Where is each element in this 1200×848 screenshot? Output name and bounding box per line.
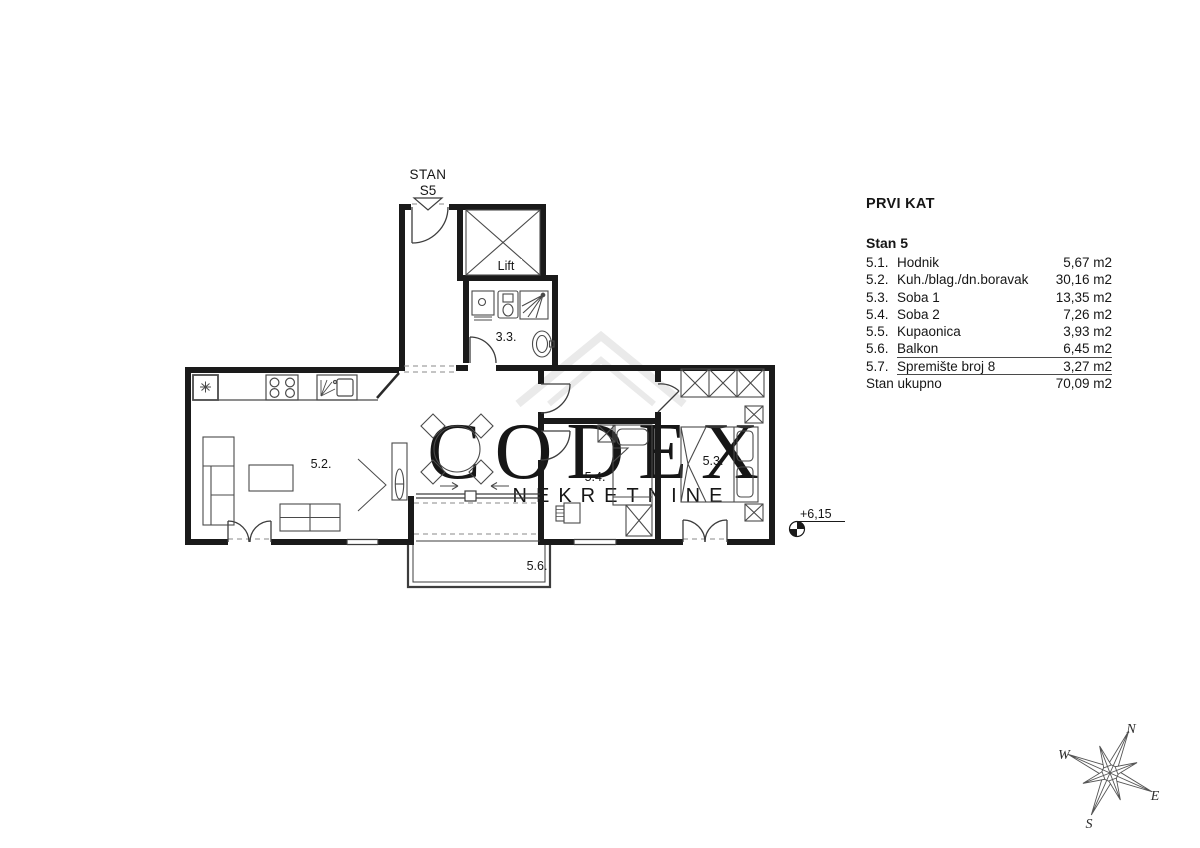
- nightstand-cross: [745, 504, 763, 521]
- legend-row-spremiste: 5.7. Spremište broj 8 3,27 m2: [866, 358, 1112, 375]
- desk-chair: [556, 506, 564, 521]
- window-bedroom2: [574, 540, 616, 545]
- lift-label: Lift: [498, 259, 515, 273]
- unit-title: Stan 5: [866, 235, 1112, 251]
- wardrobe-crosses: [681, 369, 764, 397]
- bidet-basin: [537, 336, 548, 353]
- bathroom-label: 3.3.: [496, 330, 517, 344]
- fridge-star-icon: [200, 382, 211, 393]
- elevation-quadrant-sw: [790, 529, 798, 537]
- row-area: 7,26 m2: [1063, 306, 1112, 323]
- elevation-marker: +6,15: [790, 507, 846, 537]
- desk-chair-lines: [556, 510, 564, 517]
- row-number: 5.2.: [866, 271, 897, 288]
- kitchen: [193, 375, 378, 400]
- bathroom-fixtures: [472, 291, 554, 357]
- coffee-table: [249, 465, 293, 491]
- row-area: 5,67 m2: [1063, 254, 1112, 271]
- floorplan-page: CODEX NEKRETNINE: [0, 0, 1200, 848]
- floor-title: PRVI KAT: [866, 196, 1112, 212]
- tv-cabinet: [392, 443, 407, 500]
- row-area: 3,93 m2: [1063, 323, 1112, 340]
- bedroom1-label: 5.3.: [703, 454, 724, 468]
- burner-icon: [286, 378, 295, 387]
- row-area: 6,45 m2: [1063, 340, 1112, 357]
- drainboard-lines: [321, 380, 335, 396]
- row-name: Soba 2: [897, 306, 1063, 323]
- sink-tap-icon: [334, 381, 337, 384]
- watermark-text-2: NEKRETNINE: [513, 485, 732, 507]
- legend-row-hodnik: 5.1. Hodnik 5,67 m2: [866, 254, 1112, 271]
- sofa-cushion-lines: [203, 466, 234, 525]
- dashed-corridor-opening: [404, 366, 455, 372]
- bedroom2-label: 5.4.: [585, 470, 606, 484]
- row-name: Kupaonica: [897, 323, 1063, 340]
- living-label: 5.2.: [311, 457, 332, 471]
- compass-rose: N W E S: [1049, 712, 1170, 833]
- elevation-label: +6,15: [800, 507, 832, 521]
- legend-row-soba1: 5.3. Soba 1 13,35 m2: [866, 289, 1112, 306]
- shower-spray: [522, 295, 543, 318]
- balcony-railing-inner: [413, 545, 545, 582]
- row-name: Kuh./blag./dn.boravak: [897, 271, 1056, 288]
- row-number: 5.3.: [866, 289, 897, 306]
- legend-row-soba2: 5.4. Soba 2 7,26 m2: [866, 306, 1112, 323]
- row-number: 5.5.: [866, 323, 897, 340]
- compass-west-label: W: [1058, 748, 1071, 763]
- sliding-door-mullion: [465, 491, 476, 501]
- burner-icon: [270, 378, 279, 387]
- row-name: Hodnik: [897, 254, 1063, 271]
- sink-drain-icon: [479, 299, 486, 306]
- sink-basin: [337, 379, 353, 396]
- bathroom-door: [470, 337, 496, 363]
- entrance-arrow-icon: [414, 198, 442, 210]
- window-living: [347, 540, 378, 545]
- legend-row-kupaonica: 5.5. Kupaonica 3,93 m2: [866, 323, 1112, 340]
- row-name: Balkon: [897, 340, 1063, 357]
- compass-star-icon: [1049, 712, 1170, 833]
- total-name: Stan ukupno: [866, 375, 1056, 392]
- row-area: 13,35 m2: [1056, 289, 1112, 306]
- wall-kitchen-diagonal: [377, 373, 399, 398]
- compass-north-label: N: [1125, 722, 1136, 737]
- entrance-label-2: S5: [420, 183, 437, 198]
- entrance-label-1: STAN: [409, 167, 446, 182]
- total-area: 70,09 m2: [1056, 375, 1112, 392]
- row-name: Soba 1: [897, 289, 1056, 306]
- balcony-label: 5.6.: [527, 559, 548, 573]
- row-number: 5.4.: [866, 306, 897, 323]
- vanity: [472, 291, 494, 315]
- tv-view-chevron-icon: [358, 459, 386, 511]
- row-area: 3,27 m2: [1063, 358, 1112, 375]
- towel-rail: [474, 317, 492, 320]
- sofa-sectional: [203, 437, 234, 525]
- entry-door: [412, 207, 448, 243]
- row-area: 30,16 m2: [1056, 271, 1112, 288]
- toilet-bowl: [503, 304, 513, 316]
- toilet-cistern: [503, 294, 513, 302]
- row-number: 5.7.: [866, 358, 897, 375]
- row-number: 5.1.: [866, 254, 897, 271]
- row-number: 5.6.: [866, 340, 897, 357]
- bidet: [533, 331, 552, 357]
- burner-icon: [286, 389, 295, 398]
- floorplan-drawing: CODEX NEKRETNINE: [0, 0, 1200, 848]
- wardrobe-bedroom2-cross: [626, 505, 652, 536]
- burner-icon: [270, 389, 279, 398]
- legend-rows: 5.1. Hodnik 5,67 m2 5.2. Kuh./blag./dn.b…: [866, 254, 1112, 392]
- sofa-two-seat-lines: [280, 504, 340, 531]
- compass-south-label: S: [1086, 817, 1093, 832]
- row-name: Spremište broj 8: [897, 358, 1063, 375]
- compass-east-label: E: [1150, 789, 1160, 804]
- legend-row-kuhinja: 5.2. Kuh./blag./dn.boravak 30,16 m2: [866, 271, 1112, 288]
- legend-panel: PRVI KAT Stan 5 5.1. Hodnik 5,67 m2 5.2.…: [866, 196, 1112, 392]
- legend-row-balkon: 5.6. Balkon 6,45 m2: [866, 340, 1112, 357]
- elevation-quadrant-ne: [797, 522, 805, 530]
- legend-total-row: Stan ukupno 70,09 m2: [866, 375, 1112, 392]
